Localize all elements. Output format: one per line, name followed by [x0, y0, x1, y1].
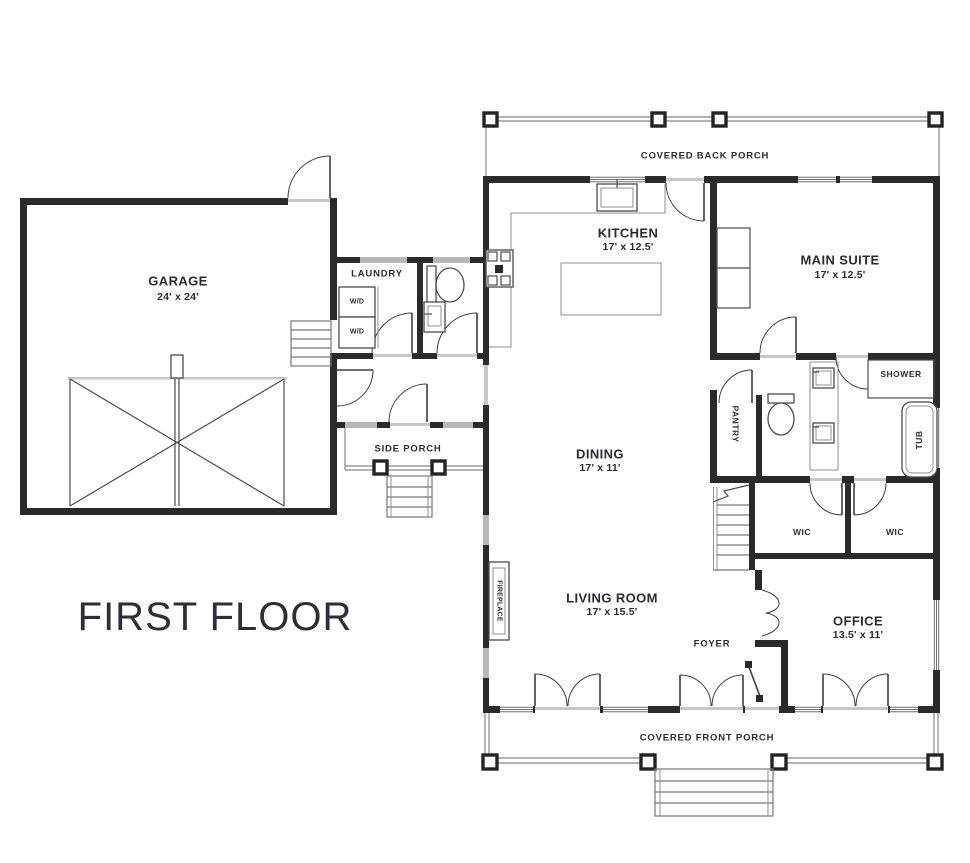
main-stairs — [713, 485, 749, 570]
side-porch-structure — [345, 428, 483, 517]
pantry-label: PANTRY — [731, 406, 740, 443]
vanity-double-sink — [810, 362, 838, 470]
kitchen-sink — [597, 179, 637, 211]
tub-label: TUB — [915, 431, 924, 450]
bath-door — [836, 357, 868, 389]
wic-right-label: WIC — [886, 528, 904, 537]
mudroom-garage-door — [337, 370, 373, 406]
fireplace-label: FIREPLACE — [496, 580, 503, 621]
office-label: OFFICE — [833, 615, 883, 628]
office-porch-french-door — [823, 674, 888, 706]
kitchen-back-door — [666, 183, 704, 221]
kitchen-dims: 17' x 12.5' — [603, 242, 654, 253]
front-door — [745, 661, 763, 702]
garage-dims: 24' x 24' — [157, 292, 199, 303]
wic-left-label: WIC — [793, 528, 811, 537]
garage-label: GARAGE — [148, 275, 207, 288]
main-suite-door — [760, 317, 796, 353]
shower-pan — [868, 360, 934, 398]
office-french-door — [762, 590, 779, 636]
living-french-door-left — [535, 674, 600, 706]
dining-dims: 17' x 11' — [579, 463, 620, 474]
laundry-label: LAUNDRY — [351, 269, 403, 279]
main-suite-dims: 17' x 12.5' — [815, 270, 866, 281]
toilet-icon-powder — [427, 266, 464, 304]
toilet-icon-bath — [768, 394, 794, 435]
washer-dryer-label-top: W/D — [350, 299, 364, 306]
front-porch-steps — [655, 769, 773, 816]
sink-icon-powder — [424, 302, 445, 332]
garage-back-door — [288, 156, 330, 198]
covered-back-porch — [484, 113, 942, 176]
garage-steps — [291, 321, 331, 366]
side-porch-label: SIDE PORCH — [374, 444, 441, 454]
kitchen-label: KITCHEN — [598, 227, 659, 240]
foyer-label: FOYER — [694, 639, 731, 649]
living-french-door-right — [680, 675, 743, 706]
floor-plan: COVERED BACK PORCH GARAGE 24' x 24' LAUN… — [0, 0, 970, 863]
office-dims: 13.5' x 11' — [833, 630, 883, 641]
garage-doors — [68, 355, 287, 506]
kitchen-island — [561, 263, 661, 315]
washer-dryer-label-bottom: W/D — [350, 329, 364, 336]
side-porch-steps — [387, 476, 432, 517]
back-porch-label: COVERED BACK PORCH — [641, 151, 769, 161]
side-porch-door — [389, 384, 427, 422]
plan-title: FIRST FLOOR — [78, 597, 353, 637]
doors — [288, 156, 888, 706]
suite-closet — [717, 228, 750, 308]
wic-right-door — [854, 483, 886, 515]
kitchen-counter — [489, 183, 665, 347]
washer-dryer-stack — [339, 287, 378, 348]
main-suite-label: MAIN SUITE — [800, 254, 879, 267]
front-porch-label: COVERED FRONT PORCH — [640, 733, 774, 743]
wic-left-door — [810, 483, 842, 515]
stove-icon — [486, 250, 513, 287]
living-room-dims: 17' x 15.5' — [587, 607, 638, 618]
pantry-door — [719, 370, 752, 403]
floor-plan-drawing — [0, 0, 970, 863]
dining-label: DINING — [576, 448, 624, 461]
shower-label: SHOWER — [880, 370, 921, 379]
living-room-label: LIVING ROOM — [566, 592, 658, 605]
covered-front-porch-structure — [483, 713, 942, 816]
